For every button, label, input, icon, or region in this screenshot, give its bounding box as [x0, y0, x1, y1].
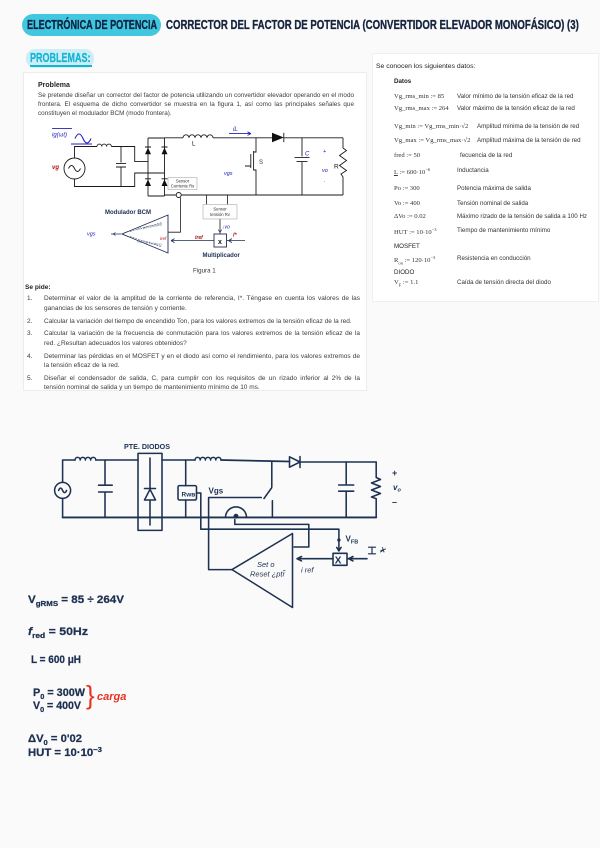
svg-text:carga: carga — [97, 691, 126, 703]
svg-text:(+1 para pausas): (+1 para pausas) — [136, 222, 162, 231]
svg-text:v​g: v​g — [52, 165, 59, 171]
svg-text:Corriente R​s: Corriente R​s — [171, 184, 195, 189]
svg-text:Modulador BCM: Modulador BCM — [105, 210, 151, 216]
svg-text:v​o: v​o — [322, 168, 328, 174]
svg-text:x: x — [218, 239, 222, 246]
svg-text:↓v​o: ↓v​o — [222, 225, 230, 231]
svg-text:vo: vo — [393, 483, 401, 494]
svg-text:i​g(ωt): i​g(ωt) — [52, 133, 67, 139]
svg-text:tensión R​v: tensión R​v — [210, 212, 231, 217]
svg-text:v​gs: v​gs — [87, 232, 96, 238]
svg-text:+: + — [323, 149, 327, 155]
svg-text:ΔV0 = 0'02: ΔV0 = 0'02 — [28, 733, 82, 747]
svg-text:R: R — [334, 164, 339, 171]
svg-text:i​ref: i​ref — [160, 236, 167, 241]
svg-text:C: C — [305, 152, 310, 158]
svg-text:L = 600 μH: L = 600 μH — [31, 654, 81, 666]
svg-text:VgRMS = 85 ÷ 264V: VgRMS = 85 ÷ 264V — [28, 594, 125, 608]
svg-text:i ref: i ref — [301, 566, 314, 575]
svg-text:fred = 50Hz: fred = 50Hz — [28, 626, 89, 640]
svg-text:V0 = 400V: V0 = 400V — [33, 700, 82, 714]
svg-text:}: } — [86, 680, 95, 710]
svg-text:Reset ¿ptr̃: Reset ¿ptr̃ — [250, 570, 286, 579]
svg-text:PTE. DIODOS: PTE. DIODOS — [124, 442, 170, 451]
svg-text:v​gs: v​gs — [224, 171, 233, 177]
svg-text:R​w​ʙ: R​w​ʙ — [182, 492, 196, 499]
svg-text:Multiplicador: Multiplicador — [203, 253, 241, 259]
svg-text:Sensor: Sensor — [213, 207, 227, 212]
svg-text:Set o: Set o — [257, 560, 275, 569]
svg-text:+: + — [392, 468, 397, 478]
svg-text:V​gs: V​gs — [209, 487, 224, 496]
svg-text:i​L: i​L — [233, 126, 238, 133]
svg-text:VFB: VFB — [346, 535, 359, 546]
svg-text:P0 = 300W: P0 = 300W — [33, 687, 86, 701]
svg-text:Figura 1: Figura 1 — [193, 268, 216, 275]
svg-text:L: L — [192, 142, 196, 148]
svg-text:X: X — [335, 556, 342, 567]
svg-text:HUT = 10·10−3: HUT = 10·10−3 — [28, 745, 102, 759]
svg-text:i​ref: i​ref — [195, 235, 204, 241]
svg-text:S: S — [259, 160, 263, 166]
svg-text:.: . — [324, 178, 326, 184]
svg-text:–: – — [392, 497, 397, 507]
svg-text:I*: I* — [233, 233, 238, 239]
